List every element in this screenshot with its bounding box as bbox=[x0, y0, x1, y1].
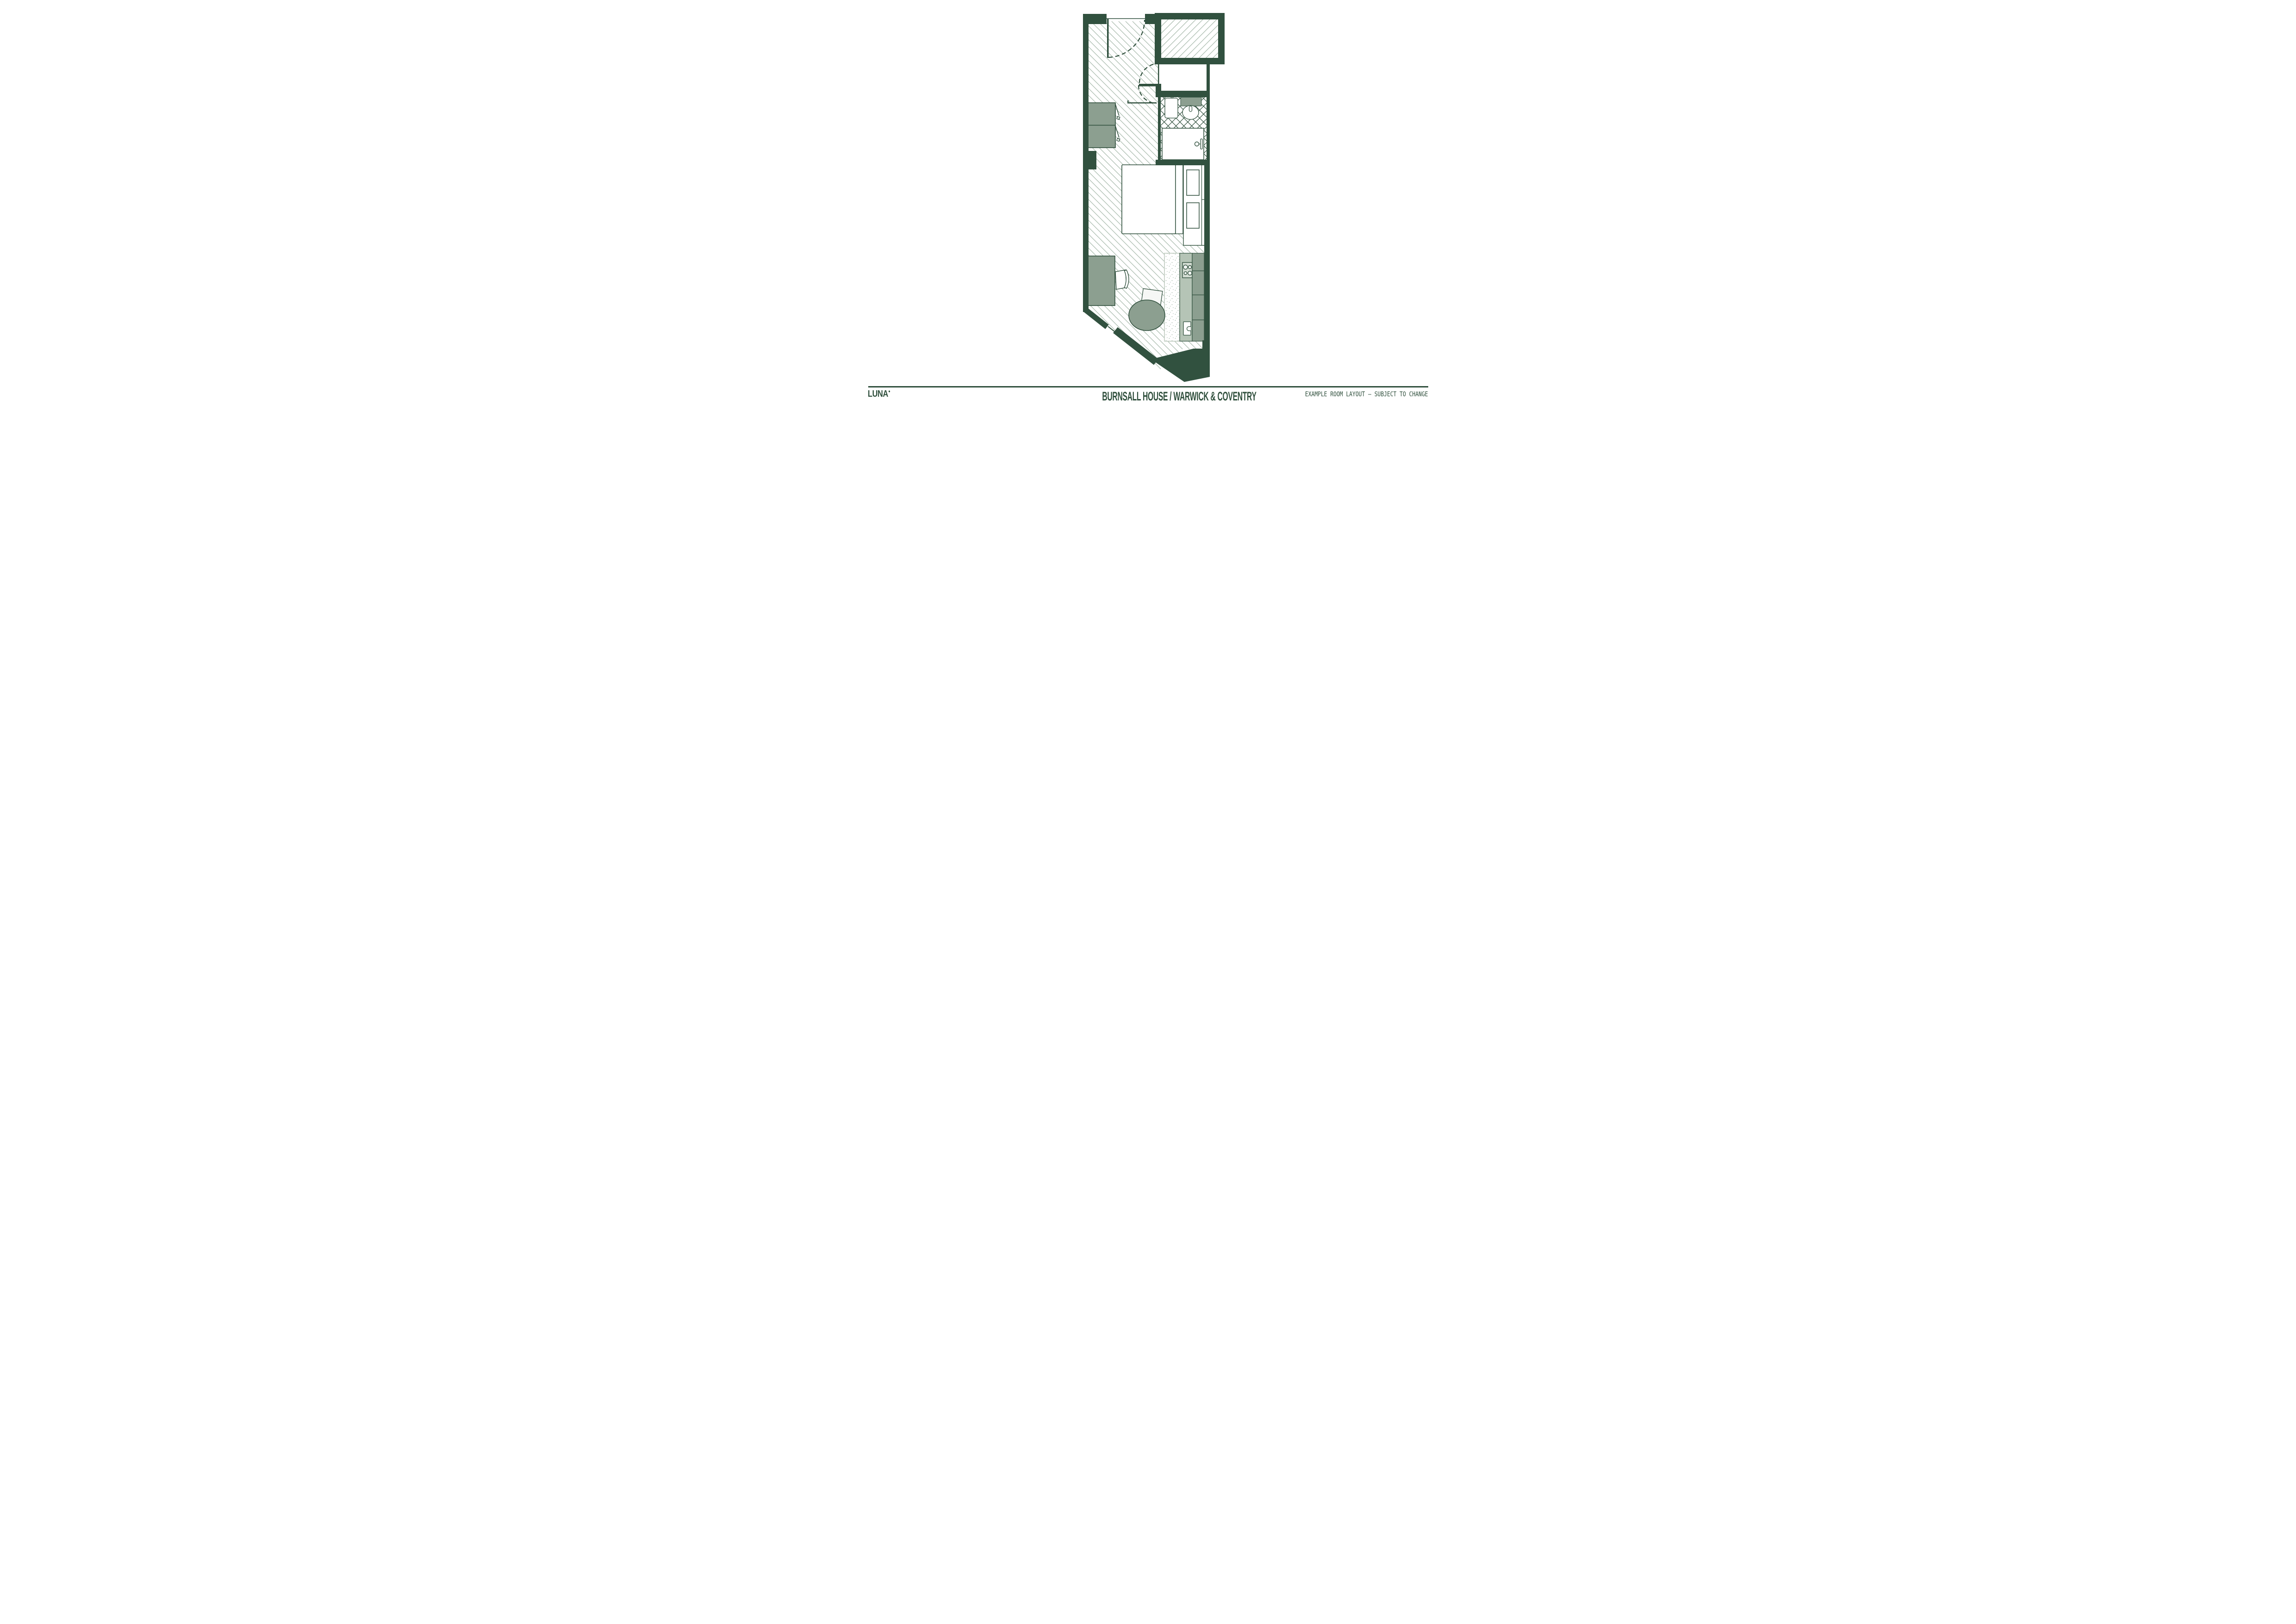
poster-page: LUNA● BURNSALL HOUSE / WARWICK & COVENTR… bbox=[861, 0, 1435, 406]
utility-cupboard bbox=[1159, 63, 1207, 91]
kitchen bbox=[1164, 253, 1204, 341]
shelf-drawer-unit bbox=[1183, 165, 1206, 245]
floor-plan bbox=[861, 0, 1435, 406]
basin-tap bbox=[1189, 106, 1192, 112]
hob bbox=[1182, 262, 1192, 278]
wardrobe bbox=[1088, 103, 1120, 148]
toilet bbox=[1165, 98, 1178, 118]
basin-counter bbox=[1181, 97, 1201, 106]
shower bbox=[1162, 128, 1204, 160]
desk bbox=[1088, 256, 1115, 306]
brand-text: LUNA bbox=[868, 389, 888, 399]
page-title: BURNSALL HOUSE / WARWICK & COVENTRY bbox=[1102, 389, 1256, 404]
bathroom bbox=[1161, 97, 1207, 160]
kitchen-sink bbox=[1183, 322, 1191, 335]
footer-divider bbox=[868, 386, 1428, 387]
brand-mark: ● bbox=[888, 389, 890, 394]
round-table bbox=[1129, 300, 1165, 331]
desk-chair bbox=[1115, 270, 1129, 289]
brand-logo: LUNA● bbox=[868, 389, 890, 400]
bed bbox=[1122, 165, 1183, 234]
disclaimer-text: EXAMPLE ROOM LAYOUT – SUBJECT TO CHANGE bbox=[1305, 391, 1428, 398]
kitchen-units bbox=[1192, 253, 1204, 341]
headboard bbox=[1176, 165, 1183, 234]
service-shaft bbox=[1161, 19, 1218, 58]
